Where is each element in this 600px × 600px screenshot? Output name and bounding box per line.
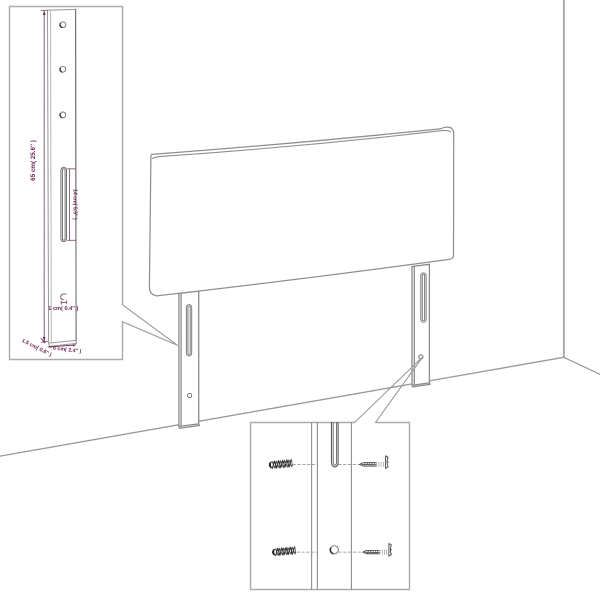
svg-text:14 cm( 5.5'' ): 14 cm( 5.5'' ) [71, 189, 77, 220]
svg-text:65 cm( 25.6'' ): 65 cm( 25.6'' ) [30, 140, 37, 181]
svg-text:1 cm( 0.4'' ): 1 cm( 0.4'' ) [48, 306, 78, 312]
